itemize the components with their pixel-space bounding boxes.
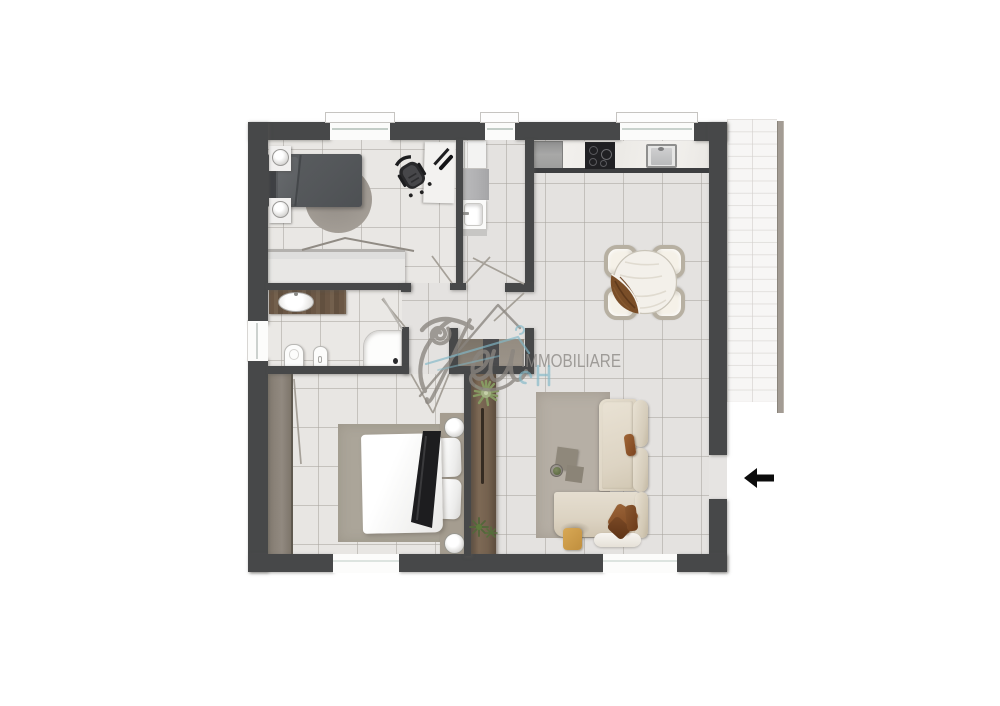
svg-text:IMMOBILIARE: IMMOBILIARE xyxy=(521,350,621,371)
